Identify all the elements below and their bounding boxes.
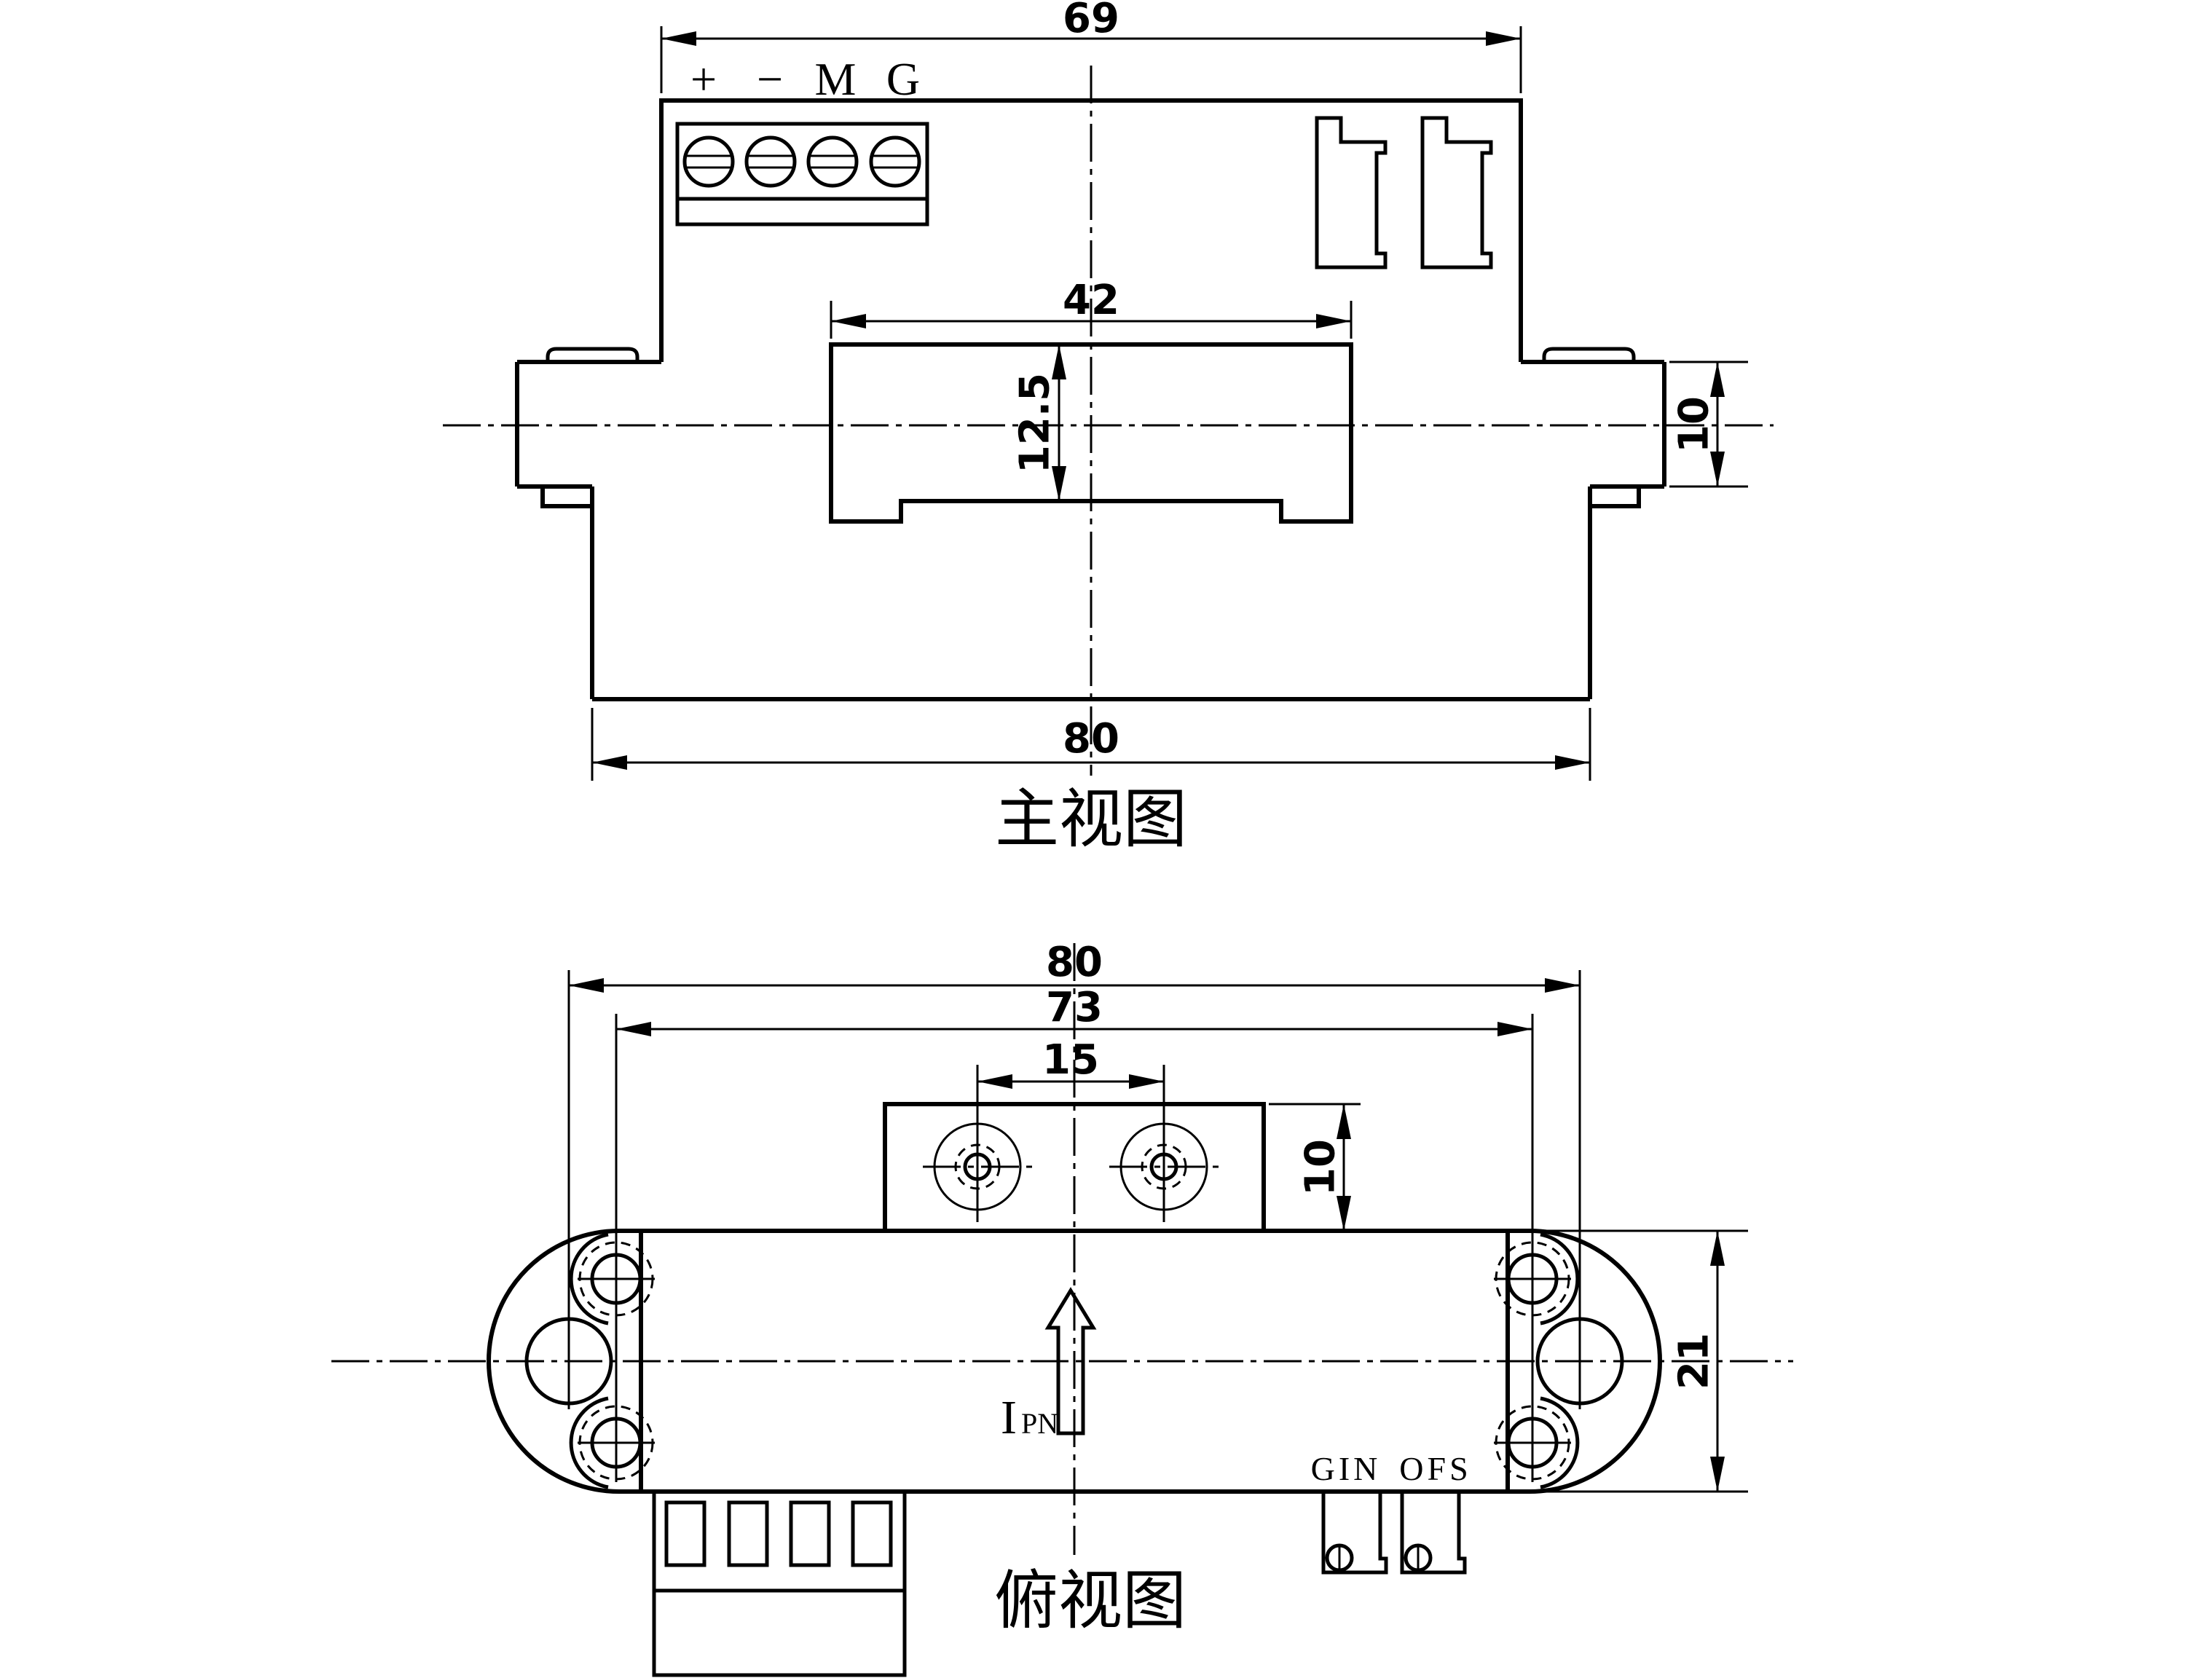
dimension-value: 80 xyxy=(1046,939,1103,986)
arrowhead xyxy=(592,755,627,770)
screw-head xyxy=(685,138,733,186)
current-arrow-group: I PN xyxy=(1001,1291,1093,1444)
arrowhead xyxy=(1710,1457,1725,1492)
arrowhead xyxy=(661,31,696,46)
top-view: I PN GIN OFS xyxy=(331,939,1793,1675)
technical-drawing-canvas: + − M G 69 42 xyxy=(0,0,2212,1678)
dimension-value: 42 xyxy=(1063,277,1119,324)
terminal-slot xyxy=(853,1502,891,1565)
arrowhead xyxy=(1710,1231,1725,1266)
pin-connectors-front xyxy=(1317,118,1491,267)
terminal-label-g: G xyxy=(886,53,920,105)
screw-terminal xyxy=(747,138,795,186)
screw-terminal xyxy=(808,138,857,186)
screw-terminal xyxy=(871,138,919,186)
arrowhead xyxy=(831,314,866,328)
arrowhead xyxy=(1555,755,1590,770)
dimension-value: 73 xyxy=(1046,984,1103,1031)
dimension-12-5: 12.5 xyxy=(1012,344,1066,501)
screw-head xyxy=(747,138,795,186)
pot-label-ofs: OFS xyxy=(1399,1450,1471,1487)
dimension-value: 15 xyxy=(1042,1036,1099,1084)
arrowhead xyxy=(616,1022,651,1036)
arrowhead xyxy=(1710,452,1725,487)
front-view-title: 主视图 xyxy=(995,785,1187,856)
terminal-block-bottom xyxy=(654,1490,905,1675)
dimension-value: 80 xyxy=(1063,715,1119,763)
drawing-page: + − M G 69 42 xyxy=(0,0,2212,1678)
terminal-block-outline xyxy=(654,1490,905,1675)
dimension-value: 69 xyxy=(1063,0,1119,42)
pin-connector xyxy=(1317,118,1385,267)
arrowhead xyxy=(1497,1022,1532,1036)
terminal-block-front: + − M G xyxy=(677,53,927,224)
terminal-label-minus: − xyxy=(757,53,783,105)
arrowhead xyxy=(1710,362,1725,397)
right-foot xyxy=(1590,487,1639,506)
terminal-label-plus: + xyxy=(690,53,717,105)
current-subscript: PN xyxy=(1021,1407,1058,1440)
arrowhead xyxy=(1129,1074,1164,1089)
trim-pots: GIN OFS xyxy=(1311,1450,1472,1572)
screw-terminal xyxy=(685,138,733,186)
top-view-title: 俯视图 xyxy=(994,1567,1186,1637)
arrowhead xyxy=(977,1074,1012,1089)
dimension-value: 12.5 xyxy=(1012,373,1059,473)
arrowhead xyxy=(1337,1104,1351,1139)
dimension-value: 10 xyxy=(1297,1139,1345,1196)
arrowhead xyxy=(1337,1196,1351,1231)
dimension-value: 10 xyxy=(1671,396,1718,453)
current-symbol: I xyxy=(1001,1391,1017,1444)
arrowhead xyxy=(1316,314,1351,328)
dimension-value: 21 xyxy=(1671,1333,1718,1390)
terminal-label-m: M xyxy=(815,53,857,105)
pot-outline-gin xyxy=(1323,1490,1386,1572)
dimension-10-top: 10 xyxy=(1269,1104,1361,1231)
screw-head xyxy=(808,138,857,186)
left-foot xyxy=(543,487,592,506)
terminal-slot xyxy=(791,1502,829,1565)
arrowhead xyxy=(1545,978,1580,993)
terminal-slot xyxy=(666,1502,704,1565)
terminal-slot xyxy=(729,1502,767,1565)
pot-outline-ofs xyxy=(1402,1490,1465,1572)
front-view: + − M G 69 42 xyxy=(443,0,1774,856)
arrowhead xyxy=(1486,31,1521,46)
pin-connector xyxy=(1422,118,1491,267)
screw-head xyxy=(871,138,919,186)
pot-label-gin: GIN xyxy=(1311,1450,1382,1487)
dimension-15: 15 xyxy=(977,1036,1164,1222)
arrowhead xyxy=(569,978,604,993)
